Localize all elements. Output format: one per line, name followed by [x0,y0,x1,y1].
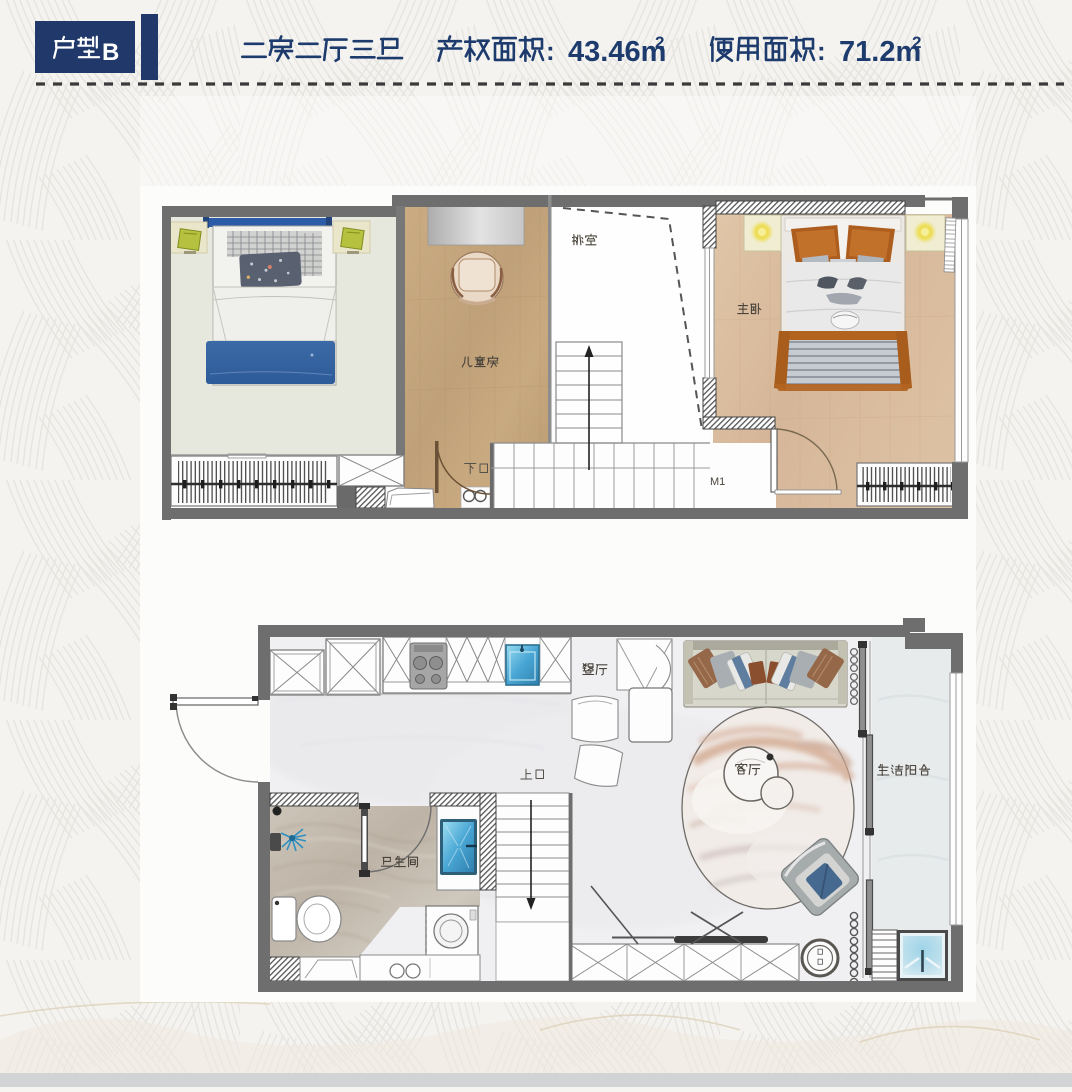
svg-text::: : [817,36,826,66]
svg-text:43.46m: 43.46m [568,36,666,68]
svg-text:71.2m: 71.2m [839,36,921,68]
svg-text:2: 2 [655,33,664,52]
svg-text:2: 2 [912,33,921,52]
svg-text:B: B [102,39,119,66]
svg-text::: : [546,36,555,66]
svg-text:M1: M1 [710,476,725,488]
